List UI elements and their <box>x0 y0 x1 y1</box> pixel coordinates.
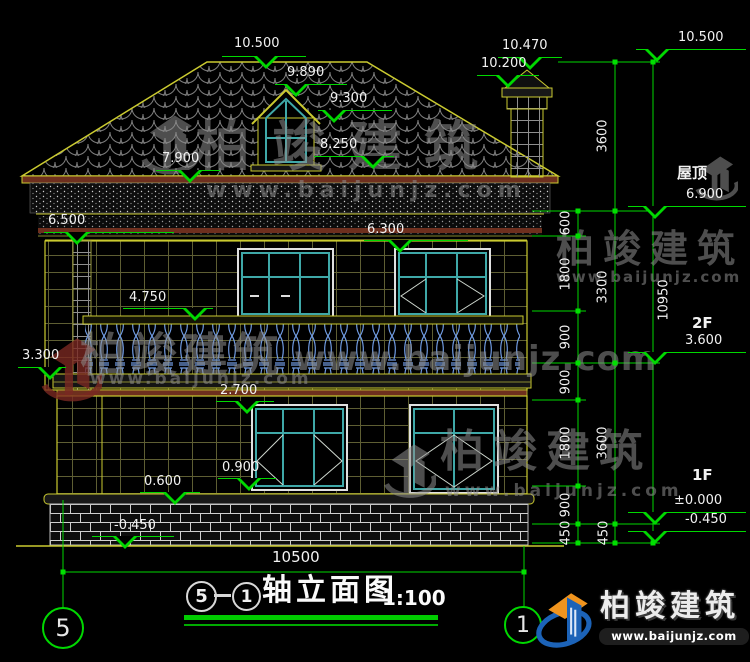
elevation-marker-triangle <box>642 206 668 219</box>
elevation-value: 9.300 <box>330 92 367 105</box>
watermark-url: www.baijunjz.com <box>90 371 312 388</box>
dimension-tick <box>613 361 618 366</box>
level-name: 屋顶 <box>677 166 707 181</box>
elevation-marker-triangle <box>37 367 63 380</box>
elevation-value: 0.900 <box>222 461 259 474</box>
title-bubble-b-num: 1 <box>241 587 253 607</box>
drawing-title: 轴立面图 <box>262 576 398 606</box>
elevation-value: 3.300 <box>22 349 59 362</box>
watermark-logo-icon <box>382 434 436 512</box>
elevation-marker-triangle <box>283 84 309 97</box>
dimension-tick <box>576 484 581 489</box>
elevation-value: ±0.000 <box>674 494 722 507</box>
elevation-marker-triangle <box>642 352 668 365</box>
axis-number: 1 <box>516 613 530 638</box>
dimension-chain-value: 600 <box>560 211 573 236</box>
plinth <box>16 494 564 546</box>
elevation-marker-triangle <box>253 56 279 69</box>
watermark-brand: 柏竣建筑 <box>440 430 652 474</box>
elevation-marker-triangle <box>234 401 260 414</box>
level-name: 2F <box>692 316 713 331</box>
elevation-value: -0.450 <box>114 519 156 532</box>
dimension-tick <box>576 541 581 546</box>
title-dash <box>214 594 231 597</box>
dimension-tick <box>576 361 581 366</box>
dimension-chain-value: 1800 <box>560 257 573 290</box>
elevation-marker-triangle <box>321 110 347 123</box>
dimension-chain-value: 900 <box>560 325 573 350</box>
elevation-value: 10.500 <box>678 31 724 44</box>
elevation-value: 10.200 <box>481 57 527 70</box>
dimension-chain-value: 900 <box>560 370 573 395</box>
window-2f-right <box>395 249 490 318</box>
elevation-marker-triangle <box>177 170 203 183</box>
window-2f-left <box>238 249 333 318</box>
dimension-chain-value: 3600 <box>597 119 610 152</box>
elevation-value: 3.600 <box>685 334 722 347</box>
elevation-value: 10.470 <box>502 39 548 52</box>
elevation-value: 9.890 <box>287 66 324 79</box>
dimension-chain-value: 3300 <box>597 270 610 303</box>
elevation-marker-triangle <box>64 232 90 245</box>
elevation-marker-triangle <box>644 49 670 62</box>
elevation-marker-line <box>364 240 468 241</box>
dimension-chain-value: 3600 <box>597 426 610 459</box>
dimension-tick <box>613 60 618 65</box>
axis-number: 5 <box>55 614 70 642</box>
elevation-value: 4.750 <box>129 291 166 304</box>
watermark-url: www.baijunjz.com <box>556 270 741 285</box>
company-logo-icon <box>536 584 598 652</box>
elevation-value: 2.700 <box>220 384 257 397</box>
title-bubble-b: 1 <box>232 582 261 611</box>
watermark-brand: 柏竣建筑 <box>556 230 744 268</box>
elevation-value: 0.600 <box>144 475 181 488</box>
title-bubble-a: 5 <box>186 581 217 612</box>
dimension-chain-value: 900 <box>560 493 573 518</box>
elevation-marker-triangle <box>642 512 668 525</box>
overall-width-value: 10500 <box>272 550 320 565</box>
company-logo-url: www.baijunjz.com <box>611 631 736 643</box>
elevation-marker-triangle <box>162 492 188 505</box>
title-underline-thick <box>184 615 438 620</box>
title-underline-thin <box>184 624 438 626</box>
elevation-marker-triangle <box>112 536 138 549</box>
dimension-chain-value: 450 <box>598 521 611 546</box>
elevation-marker-triangle <box>236 478 262 491</box>
company-logo-url-bar: www.baijunjz.com <box>599 628 749 645</box>
elevation-marker-triangle <box>387 240 413 253</box>
dimension-tick <box>613 522 618 527</box>
elevation-value: 8.250 <box>320 138 357 151</box>
elevation-value: -0.450 <box>685 513 727 526</box>
axis-bubble-left: 5 <box>42 607 84 649</box>
elevation-marker-triangle <box>495 75 521 88</box>
dimension-tick <box>576 209 581 214</box>
dimension-tick <box>522 570 527 575</box>
watermark-url: www.baijunjz.com <box>294 342 657 376</box>
dimension-chain-value: 1800 <box>560 426 573 459</box>
dimension-chain-value: 450 <box>560 521 573 546</box>
drawing-scale: 1:100 <box>382 588 446 608</box>
dimension-tick <box>61 570 66 575</box>
dimension-tick <box>576 522 581 527</box>
elevation-marker-triangle <box>360 156 386 169</box>
elevation-value: 6.500 <box>48 214 85 227</box>
company-logo-brand: 柏竣建筑 <box>600 592 740 622</box>
elevation-value: 6.900 <box>686 188 723 201</box>
elevation-value: 6.300 <box>367 223 404 236</box>
watermark-url: www.baijunjz.com <box>206 180 527 202</box>
dimension-tick <box>651 541 656 546</box>
elevation-value: 10.500 <box>234 37 280 50</box>
dimension-tick <box>576 398 581 403</box>
elevation-value: 7.900 <box>162 152 199 165</box>
cad-elevation-sheet: 柏竣建筑 www.baijunjz.com 柏竣建筑 www.baijunjz.… <box>0 0 750 662</box>
dimension-tick <box>651 60 656 65</box>
dimension-tick <box>613 541 618 546</box>
title-bubble-a-num: 5 <box>195 586 208 607</box>
level-name: 1F <box>692 468 713 483</box>
dimension-tick <box>576 234 581 239</box>
dimension-tick <box>613 209 618 214</box>
elevation-marker-triangle <box>182 308 208 321</box>
dimension-tick <box>576 309 581 314</box>
dimension-chain-value: 10950 <box>658 279 671 320</box>
